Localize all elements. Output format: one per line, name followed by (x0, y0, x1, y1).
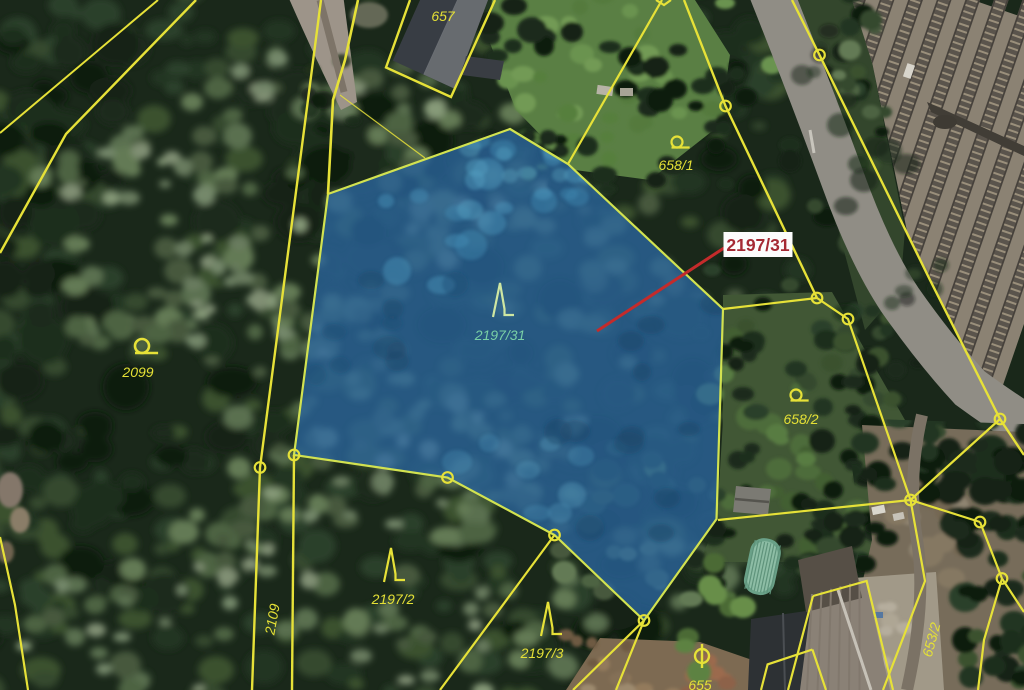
svg-text:2197/31: 2197/31 (726, 235, 790, 255)
svg-text:655: 655 (688, 677, 712, 690)
svg-text:657: 657 (431, 8, 456, 24)
svg-text:658/2: 658/2 (783, 411, 818, 427)
svg-text:658/1: 658/1 (658, 157, 693, 173)
svg-text:2197/31: 2197/31 (474, 327, 526, 343)
svg-text:2197/2: 2197/2 (371, 591, 415, 607)
svg-text:2197/3: 2197/3 (520, 645, 564, 661)
svg-text:2099: 2099 (121, 364, 153, 380)
